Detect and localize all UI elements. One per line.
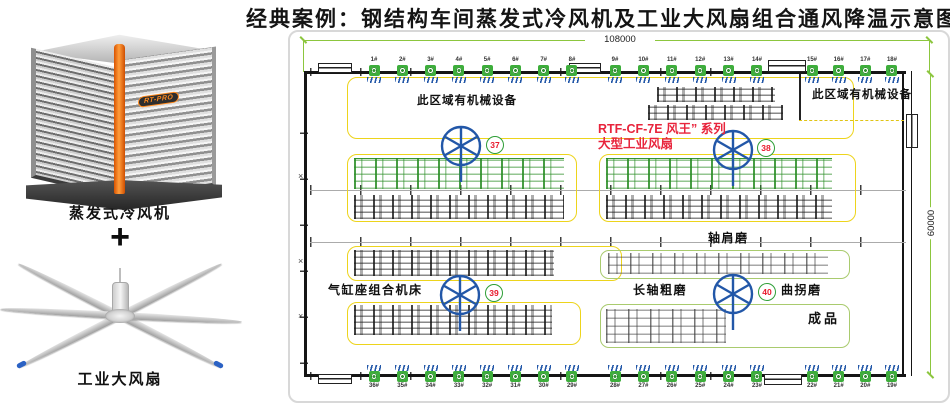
door-symbol	[768, 60, 806, 72]
airflow-arrows-icon	[693, 77, 707, 83]
dim-top-label: 108000	[585, 35, 655, 45]
evap-cooler-marker: 15#	[805, 57, 819, 83]
cooler-number: 10#	[638, 57, 648, 64]
cooler-box-icon	[638, 371, 649, 382]
evap-cooler-marker: 22#	[805, 364, 819, 390]
airflow-arrows-icon	[885, 77, 899, 83]
machine-row	[354, 195, 564, 219]
label-finished-goods: 成品	[808, 308, 840, 327]
cooler-number: 12#	[695, 57, 705, 64]
hvls-fan-symbol	[439, 124, 483, 186]
fan-caption: 工业大风扇	[30, 368, 210, 389]
cooler-orange-corner	[114, 44, 125, 194]
evap-cooler-marker: 20#	[858, 364, 872, 390]
cooler-number: 35#	[397, 383, 407, 390]
cooler-number: 1#	[371, 57, 378, 64]
hvls-fan-image	[0, 248, 246, 373]
cooler-box-icon	[833, 65, 844, 76]
label-crank-grinder: 曲拐磨	[781, 281, 822, 298]
cooler-box-icon	[566, 65, 577, 76]
evap-cooler-marker: 19#	[885, 364, 899, 390]
brace-mark: ×	[298, 312, 303, 321]
evap-cooler-marker: 5#	[480, 57, 494, 83]
evap-cooler-marker: 1#	[367, 57, 381, 83]
cooler-number: 20#	[860, 383, 870, 390]
cooler-left-face	[31, 48, 120, 199]
cooler-number: 34#	[426, 383, 436, 390]
cooler-number: 31#	[510, 383, 520, 390]
cooler-box-icon	[610, 371, 621, 382]
evap-cooler-marker: 32#	[480, 364, 494, 390]
airflow-arrows-icon	[665, 77, 679, 83]
evap-cooler-marker: 30#	[537, 364, 551, 390]
cooler-number: 7#	[540, 57, 547, 64]
cooler-number: 25#	[695, 383, 705, 390]
door-symbol	[764, 374, 802, 385]
evap-cooler-marker: 12#	[693, 57, 707, 83]
cooler-box-icon	[453, 371, 464, 382]
fan-series-line2: 大型工业风扇	[598, 133, 673, 152]
cooler-box-icon	[638, 65, 649, 76]
cooler-box-icon	[666, 65, 677, 76]
machine-row	[606, 309, 726, 343]
evap-cooler-marker: 26#	[665, 364, 679, 390]
evap-cooler-marker: 16#	[832, 57, 846, 83]
machine-row	[606, 195, 832, 219]
fan-hub	[105, 309, 135, 323]
cooler-number: 6#	[512, 57, 519, 64]
cooler-number: 5#	[484, 57, 491, 64]
evap-cooler-marker: 35#	[395, 364, 409, 390]
cooler-box-icon	[860, 371, 871, 382]
cooler-box-icon	[453, 65, 464, 76]
cooler-box-icon	[695, 65, 706, 76]
cooler-number: 22#	[807, 383, 817, 390]
cooler-box-icon	[397, 371, 408, 382]
label-long-shaft: 长轴粗磨	[633, 281, 687, 298]
cooler-row-bottom-2: 28# 27# 26# 25# 24# 23#	[608, 364, 764, 390]
evap-cooler-marker: 23#	[750, 364, 764, 390]
evap-cooler-marker: 24#	[722, 364, 736, 390]
evap-cooler-marker: 27#	[636, 364, 650, 390]
cooler-box-icon	[482, 371, 493, 382]
airflow-arrows-icon	[750, 77, 764, 83]
cooler-box-icon	[723, 65, 734, 76]
grid-line	[310, 242, 906, 243]
cooler-box-icon	[425, 371, 436, 382]
evap-cooler-marker: 4#	[452, 57, 466, 83]
cooler-number: 15#	[807, 57, 817, 64]
cooler-row-top-2: 9# 10# 11# 12# 13# 14#	[608, 57, 764, 83]
evap-cooler-marker: 18#	[885, 57, 899, 83]
label-shoulder-grinder: 轴肩磨	[708, 229, 749, 246]
dim-right-label: 60000	[927, 207, 937, 239]
cooler-number: 4#	[456, 57, 463, 64]
cooler-number: 28#	[610, 383, 620, 390]
fan-number-badge: 40	[758, 283, 776, 301]
evap-cooler-marker: 10#	[636, 57, 650, 83]
machine-cluster	[657, 87, 775, 102]
cooler-box-icon	[807, 65, 818, 76]
cooler-box-icon	[886, 371, 897, 382]
cooler-number: 23#	[752, 383, 762, 390]
door-symbol	[318, 374, 352, 384]
cooler-box-icon	[369, 371, 380, 382]
cooler-number: 11#	[667, 57, 677, 64]
floor-plan: 108000 60000 × × ×	[288, 30, 950, 403]
cooler-number: 27#	[638, 383, 648, 390]
evap-cooler-marker: 17#	[858, 57, 872, 83]
cooler-box-icon	[510, 65, 521, 76]
cooler-box-icon	[886, 65, 897, 76]
door-symbol	[318, 63, 352, 73]
airflow-arrows-icon	[424, 77, 438, 83]
airflow-arrows-icon	[722, 77, 736, 83]
cooler-row-bottom-3: 22# 21# 20# 19#	[805, 364, 899, 390]
evap-cooler-marker: 13#	[722, 57, 736, 83]
fan-number-badge: 38	[757, 139, 775, 157]
cooler-box-icon	[510, 371, 521, 382]
zone-label-right: 此区域有机械设备	[812, 86, 912, 102]
wall-left	[304, 71, 307, 376]
cooler-box-icon	[566, 371, 577, 382]
machine-row	[608, 253, 828, 274]
cooler-row-top-3: 15# 16# 17# 18#	[805, 57, 899, 83]
cooler-box-icon	[369, 65, 380, 76]
cooler-number: 3#	[427, 57, 434, 64]
cooler-box-icon	[482, 65, 493, 76]
evap-cooler-marker: 36#	[367, 364, 381, 390]
cooler-number: 17#	[860, 57, 870, 64]
cooler-number: 8#	[569, 57, 576, 64]
evap-cooler-marker: 9#	[608, 57, 622, 83]
airflow-arrows-icon	[858, 77, 872, 83]
cooler-number: 16#	[834, 57, 844, 64]
cooler-box-icon	[538, 65, 549, 76]
evaporative-cooler-image: RT-PRO	[26, 34, 224, 206]
cooler-box-icon	[723, 371, 734, 382]
hvls-fan-symbol	[711, 272, 755, 334]
cooler-number: 14#	[752, 57, 762, 64]
airflow-arrows-icon	[608, 77, 622, 83]
evap-cooler-marker: 25#	[693, 364, 707, 390]
evap-cooler-marker: 3#	[424, 57, 438, 83]
airflow-arrows-icon	[508, 77, 522, 83]
cooler-number: 33#	[454, 383, 464, 390]
cooler-box-icon	[695, 371, 706, 382]
airflow-arrows-icon	[565, 77, 579, 83]
dim-ext-left	[303, 40, 304, 72]
evap-cooler-marker: 29#	[565, 364, 579, 390]
cooler-number: 2#	[399, 57, 406, 64]
evap-cooler-marker: 21#	[832, 364, 846, 390]
cooler-box-icon	[397, 65, 408, 76]
cooler-box-icon	[751, 371, 762, 382]
cooler-number: 36#	[369, 383, 379, 390]
fan-number-badge: 37	[486, 136, 504, 154]
evap-cooler-marker: 31#	[508, 364, 522, 390]
fan-motor-rod	[119, 268, 121, 283]
cooler-row-top-1: 1# 2# 3# 4# 5# 6#	[367, 57, 579, 83]
fan-number-badge: 39	[485, 284, 503, 302]
evap-cooler-marker: 33#	[452, 364, 466, 390]
airflow-arrows-icon	[395, 77, 409, 83]
cooler-box-icon	[751, 65, 762, 76]
airflow-arrows-icon	[452, 77, 466, 83]
cooler-box-icon	[860, 65, 871, 76]
airflow-arrows-icon	[636, 77, 650, 83]
cooler-box-icon	[425, 65, 436, 76]
cooler-box-icon	[833, 371, 844, 382]
cooler-box-icon	[666, 371, 677, 382]
airflow-arrows-icon	[480, 77, 494, 83]
cooler-box-icon	[610, 65, 621, 76]
cooler-right-face	[124, 47, 216, 200]
zone-boundary-dashed	[799, 120, 904, 121]
cooler-box-icon	[807, 371, 818, 382]
evap-cooler-marker: 6#	[508, 57, 522, 83]
cooler-box-icon	[538, 371, 549, 382]
cooler-number: 32#	[482, 383, 492, 390]
cooler-number: 19#	[887, 383, 897, 390]
cooler-number: 9#	[612, 57, 619, 64]
page-title: 经典案例：钢结构车间蒸发式冷风机及工业大风扇组合通风降温示意图	[246, 3, 948, 33]
dim-ext-right	[929, 40, 930, 72]
evap-cooler-marker: 8#	[565, 57, 579, 83]
door-symbol	[906, 114, 918, 148]
zone-boundary-line	[799, 74, 801, 120]
cooler-number: 21#	[834, 383, 844, 390]
evap-cooler-marker: 14#	[750, 57, 764, 83]
evap-cooler-marker: 28#	[608, 364, 622, 390]
cooler-number: 26#	[667, 383, 677, 390]
cooler-number: 13#	[724, 57, 734, 64]
hvls-fan-symbol	[438, 273, 482, 335]
cooler-row-bottom-1: 36# 35# 34# 33# 32# 31#	[367, 364, 579, 390]
cooler-number: 24#	[724, 383, 734, 390]
hvls-fan-symbol	[711, 128, 755, 190]
zone-label-left: 此区域有机械设备	[417, 92, 517, 108]
airflow-arrows-icon	[367, 77, 381, 83]
airflow-arrows-icon	[805, 77, 819, 83]
evap-cooler-marker: 34#	[424, 364, 438, 390]
evap-cooler-marker: 2#	[395, 57, 409, 83]
airflow-arrows-icon	[832, 77, 846, 83]
label-cylinder-machine: 气缸座组合机床	[328, 281, 423, 298]
cooler-number: 29#	[567, 383, 577, 390]
airflow-arrows-icon	[537, 77, 551, 83]
brace-mark: ×	[298, 172, 303, 181]
cooler-number: 30#	[539, 383, 549, 390]
brace-mark: ×	[298, 257, 303, 266]
cooler-number: 18#	[887, 57, 897, 64]
evap-cooler-marker: 11#	[665, 57, 679, 83]
evap-cooler-marker: 7#	[537, 57, 551, 83]
page: 经典案例：钢结构车间蒸发式冷风机及工业大风扇组合通风降温示意图 RT-PRO 蒸…	[0, 0, 950, 403]
